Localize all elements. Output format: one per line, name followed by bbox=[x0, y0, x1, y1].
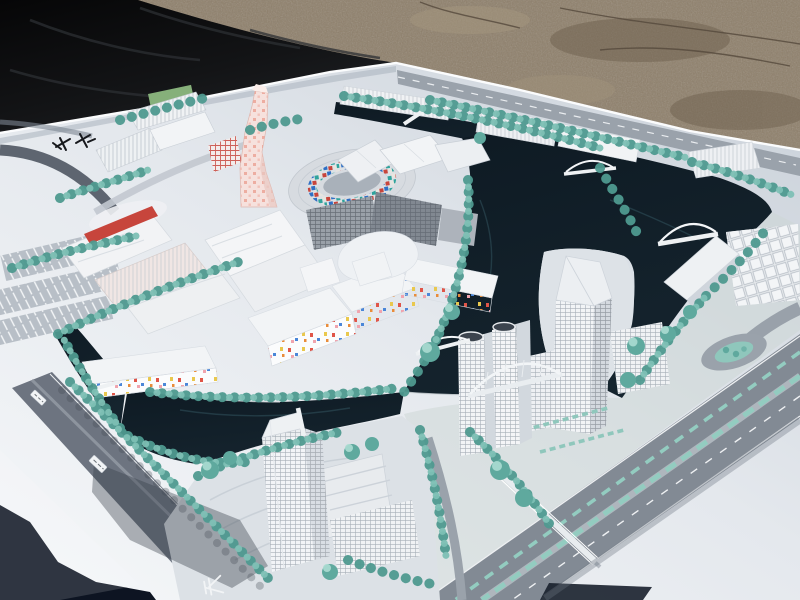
model-scene bbox=[0, 0, 800, 600]
twin-tower-b-court bbox=[493, 322, 515, 331]
photo-of-architecture-model bbox=[0, 0, 800, 600]
